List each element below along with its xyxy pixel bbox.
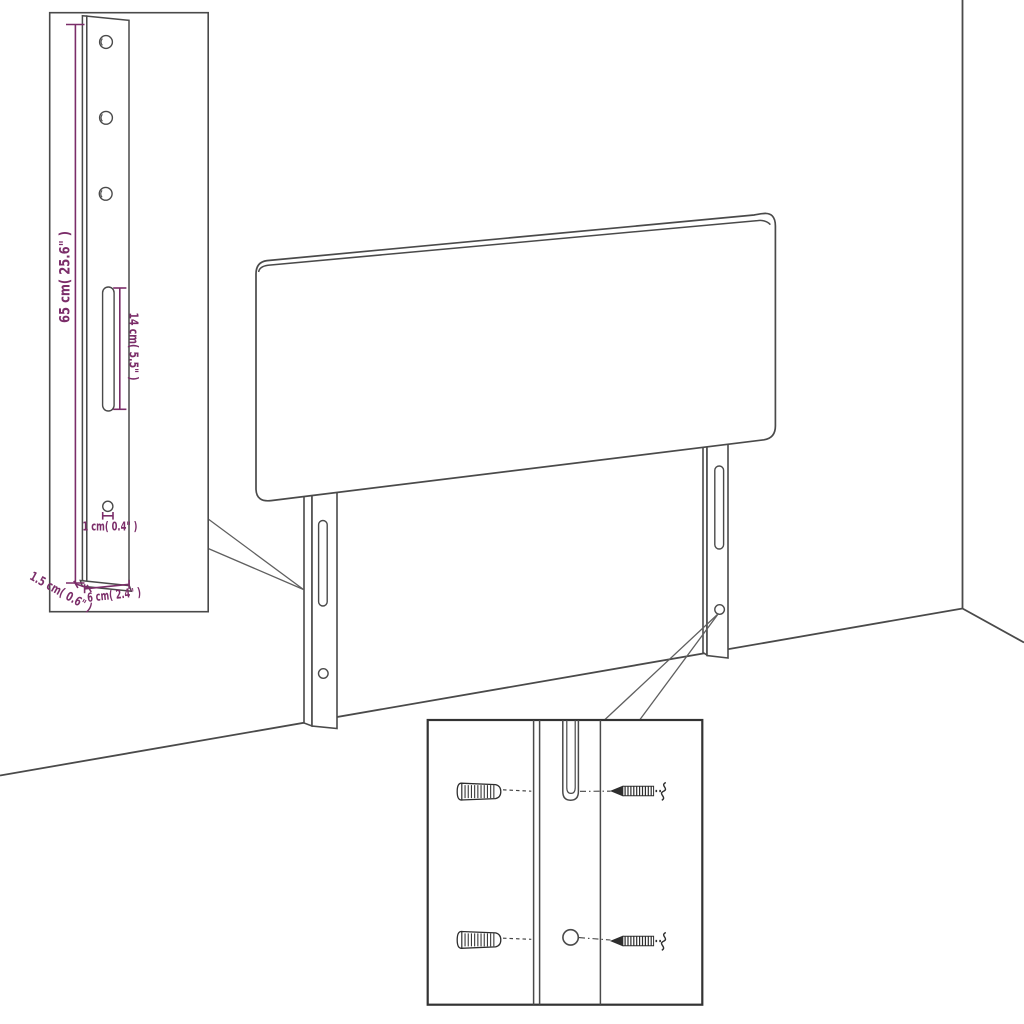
- bracket-small-hole: [103, 501, 113, 511]
- hole-diameter-label: 1 cm( 0.4" ): [83, 519, 138, 534]
- left-leg-hole: [319, 669, 329, 679]
- callout-line: [640, 614, 719, 720]
- left-leg-slot: [319, 521, 328, 607]
- right-leg-slot: [715, 466, 724, 549]
- bracket-hole-bottom: [99, 187, 112, 200]
- dimension-inset: 65 cm( 25.6" ) 14 cm( 5.5" ) 1 cm( 0.4" …: [27, 13, 208, 615]
- left-leg: [304, 487, 337, 729]
- right-leg-hole: [715, 605, 725, 615]
- callout-to-dimension-inset: [208, 519, 303, 590]
- callout-to-hardware-inset: [605, 614, 719, 720]
- hardware-inset-border: [428, 720, 703, 1005]
- bracket-hole-top: [100, 36, 113, 49]
- left-leg-side-face: [304, 489, 312, 726]
- bracket-slot: [103, 287, 115, 411]
- headboard-panel-outline: [256, 213, 775, 500]
- slot-length-label: 14 cm( 5.5" ): [127, 313, 142, 381]
- bracket-drawing: [80, 16, 131, 592]
- diagram-canvas: 65 cm( 25.6" ) 14 cm( 5.5" ) 1 cm( 0.4" …: [0, 0, 1024, 1024]
- bracket-hole-middle: [100, 111, 113, 124]
- headboard-dimension-diagram: 65 cm( 25.6" ) 14 cm( 5.5" ) 1 cm( 0.4" …: [0, 0, 1024, 1024]
- callout-line: [605, 614, 719, 720]
- floor-line-right: [963, 609, 1024, 643]
- headboard-panel: [256, 213, 775, 500]
- hardware-inset: [428, 720, 703, 1005]
- bracket-height-label: 65 cm( 25.6" ): [58, 231, 74, 323]
